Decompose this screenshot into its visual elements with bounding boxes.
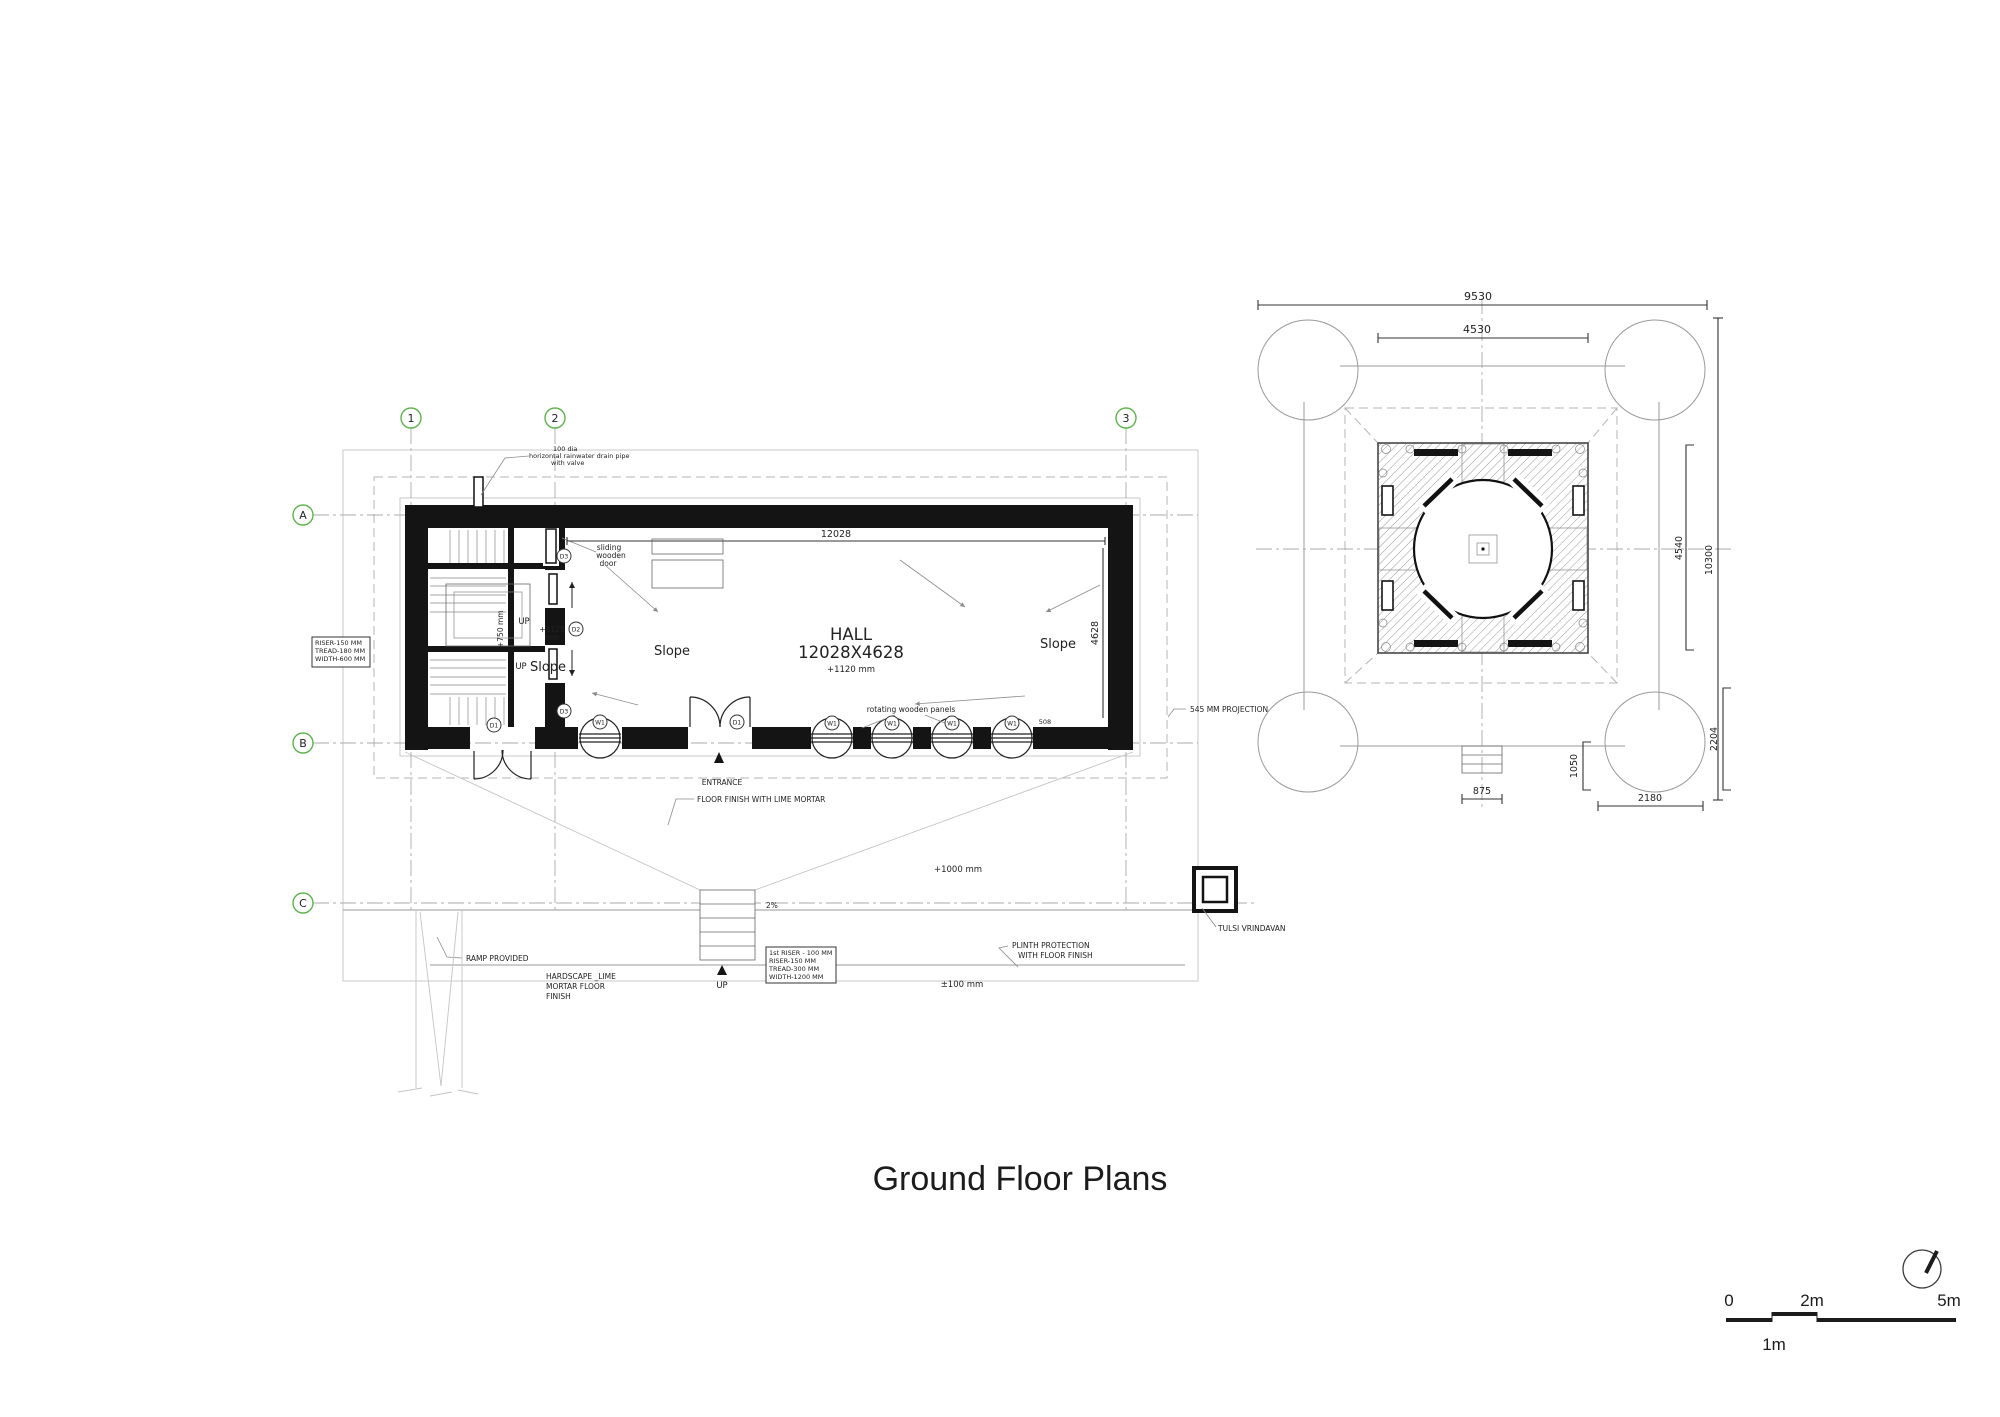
- dim-9530: 9530: [1464, 290, 1492, 303]
- rotating-panels-label: rotating wooden panels: [867, 705, 956, 714]
- rainwater-pipe: [474, 477, 483, 507]
- grid-label-C: C: [299, 897, 307, 910]
- sliding-door-leaf: [546, 529, 556, 563]
- ground-level: ±100 mm: [941, 980, 984, 990]
- entry-spec-l2: RISER-150 MM: [769, 957, 816, 965]
- staircase: +750 mm: [428, 530, 546, 725]
- svg-text:W1: W1: [1007, 721, 1017, 728]
- floor-finish-note: FLOOR FINISH WITH LIME MORTAR: [697, 795, 825, 804]
- ramp-note: RAMP PROVIDED: [466, 954, 529, 963]
- up-label-2: UP: [515, 662, 526, 672]
- ramp-percent: 2%: [766, 901, 778, 910]
- stair-well: [446, 584, 530, 646]
- tag-d3-top: D3: [557, 549, 571, 563]
- plinth-l2: WITH FLOOR FINISH: [1018, 951, 1093, 960]
- svg-text:W1: W1: [827, 721, 837, 728]
- svg-text:D3: D3: [560, 709, 569, 716]
- grid-bubble-2: 2: [545, 408, 565, 428]
- rain-pipe-leader: [481, 456, 529, 495]
- ramp: [398, 910, 478, 1096]
- dim-10300: 10300: [1704, 545, 1715, 575]
- stair-spec-l3: WIDTH-600 MM: [315, 655, 365, 663]
- dim-2180: 2180: [1638, 793, 1662, 804]
- tag-d1-stair: D1: [487, 718, 501, 732]
- sliding-note-l3: door: [599, 559, 617, 568]
- entrance-label: ENTRANCE: [702, 778, 743, 787]
- hardscape-l2: MORTAR FLOOR: [546, 982, 605, 991]
- dim-4628: 4628: [1090, 621, 1101, 645]
- slope-lane: UP UP +1125 mm Slope: [515, 570, 572, 683]
- stair-spec-l2: TREAD-180 MM: [314, 647, 365, 655]
- furniture-2: [652, 560, 723, 588]
- dim-875: 875: [1473, 786, 1491, 797]
- dim-508: 508: [1039, 718, 1051, 726]
- ramp-leader: [437, 937, 462, 958]
- entry-spec-l3: TREAD-300 MM: [768, 965, 819, 973]
- hall-name: HALL: [830, 625, 873, 644]
- entrance-marker: [714, 752, 724, 763]
- hall-level: +1120 mm: [827, 665, 875, 675]
- dim-bracket-1050: [1583, 742, 1591, 790]
- stair-treads: [430, 530, 506, 725]
- dim-4540: 4540: [1674, 536, 1685, 560]
- tag-d2: D2: [569, 622, 583, 636]
- sliding-leaf-upper: [549, 574, 557, 604]
- drawing-sheet: 1 2 3 A B C +750 mm: [0, 0, 2000, 1417]
- north-arrow-icon: [1903, 1250, 1941, 1288]
- floor-finish-leader: [668, 799, 694, 825]
- dim-bracket-4540: [1686, 445, 1694, 650]
- apron-features: UP TULSI VRINDAVAN: [398, 752, 1285, 1096]
- hall-size: 12028X4628: [798, 643, 904, 662]
- plinth-l1: PLINTH PROTECTION: [1012, 941, 1090, 950]
- tag-d1-door: D1: [730, 715, 744, 729]
- tag-w1-2: W1: [825, 716, 839, 730]
- title-block: Ground Floor Plans 0 2m 5m 1m: [873, 1160, 1961, 1354]
- entry-stair: [700, 890, 755, 960]
- apron-level: +1000 mm: [934, 865, 982, 875]
- drain-line-left: [405, 752, 700, 890]
- entry-spec-l1: 1st RISER - 100 MM: [769, 949, 833, 957]
- tulsi-vrindavan: TULSI VRINDAVAN: [1194, 868, 1285, 933]
- hardscape-l3: FINISH: [546, 992, 571, 1001]
- slope-label-vestibule: Slope: [530, 660, 566, 675]
- building-walls: [405, 505, 1133, 750]
- stair-beam-lower: [428, 646, 546, 652]
- tulsi-label: TULSI VRINDAVAN: [1217, 924, 1285, 933]
- dim-4530: 4530: [1463, 323, 1491, 336]
- svg-text:D1: D1: [733, 720, 742, 727]
- grid-label-1: 1: [408, 412, 415, 425]
- dim-2204: 2204: [1709, 727, 1720, 751]
- tag-w1-1: W1: [593, 715, 607, 729]
- svg-text:W1: W1: [595, 720, 605, 727]
- svg-text:D2: D2: [572, 627, 581, 634]
- rain-note-l3: with valve: [551, 459, 584, 467]
- scale-1m: 1m: [1762, 1335, 1786, 1354]
- svg-text:W1: W1: [887, 721, 897, 728]
- scale-5m: 5m: [1937, 1291, 1961, 1310]
- tag-w1-4: W1: [945, 716, 959, 730]
- svg-text:D3: D3: [560, 554, 569, 561]
- sheet-title: Ground Floor Plans: [873, 1160, 1168, 1198]
- slope-label-right: Slope: [1040, 637, 1076, 652]
- grid-label-3: 3: [1123, 412, 1130, 425]
- svg-text:D1: D1: [490, 723, 499, 730]
- scale-2m: 2m: [1800, 1291, 1824, 1310]
- grid-label-A: A: [299, 509, 307, 522]
- stair-exit-door: [474, 750, 531, 779]
- left-plan: 1 2 3 A B C +750 mm: [293, 408, 1285, 1096]
- vestibule-level-l2: mm: [545, 633, 560, 642]
- grid-label-B: B: [299, 737, 307, 750]
- dim-1050: 1050: [1569, 754, 1580, 778]
- right-plan: 9530 4530 4540 10300 1050 2180 2204 875: [1256, 290, 1732, 811]
- up-label-entry: UP: [716, 981, 727, 991]
- grid-bubble-C: C: [293, 893, 313, 913]
- stair-mid-level: +750 mm: [496, 610, 505, 648]
- tag-d3-bottom: D3: [557, 704, 571, 718]
- grid-bubble-A: A: [293, 505, 313, 525]
- grid-bubble-3: 3: [1116, 408, 1136, 428]
- stair-beam-upper: [428, 563, 546, 569]
- scale-0: 0: [1724, 1291, 1733, 1310]
- up-label-1: UP: [518, 617, 529, 627]
- projection-leader: [1168, 709, 1186, 717]
- grid-label-2: 2: [552, 412, 559, 425]
- scale-bar: 0 2m 5m 1m: [1724, 1291, 1961, 1354]
- hardscape-l1: HARDSCAPE _LIME: [546, 972, 616, 981]
- dim-bracket-2204: [1723, 688, 1731, 790]
- dim-12028: 12028: [821, 529, 851, 540]
- tower-structure: [1378, 443, 1588, 773]
- slope-label-left: Slope: [654, 644, 690, 659]
- stair-spec-l1: RISER-150 MM: [315, 639, 362, 647]
- tag-w1-3: W1: [885, 716, 899, 730]
- grid-bubble-1: 1: [401, 408, 421, 428]
- entry-spec-l4: WIDTH-1200 MM: [769, 973, 823, 981]
- svg-text:W1: W1: [947, 721, 957, 728]
- tag-w1-5: W1: [1005, 716, 1019, 730]
- entry-up-marker: [717, 965, 727, 975]
- projection-note: 545 MM PROJECTION: [1190, 705, 1268, 714]
- hall: 12028 4628 HALL 12028X4628 +1120 mm Slop…: [567, 529, 1105, 718]
- grid-bubble-B: B: [293, 733, 313, 753]
